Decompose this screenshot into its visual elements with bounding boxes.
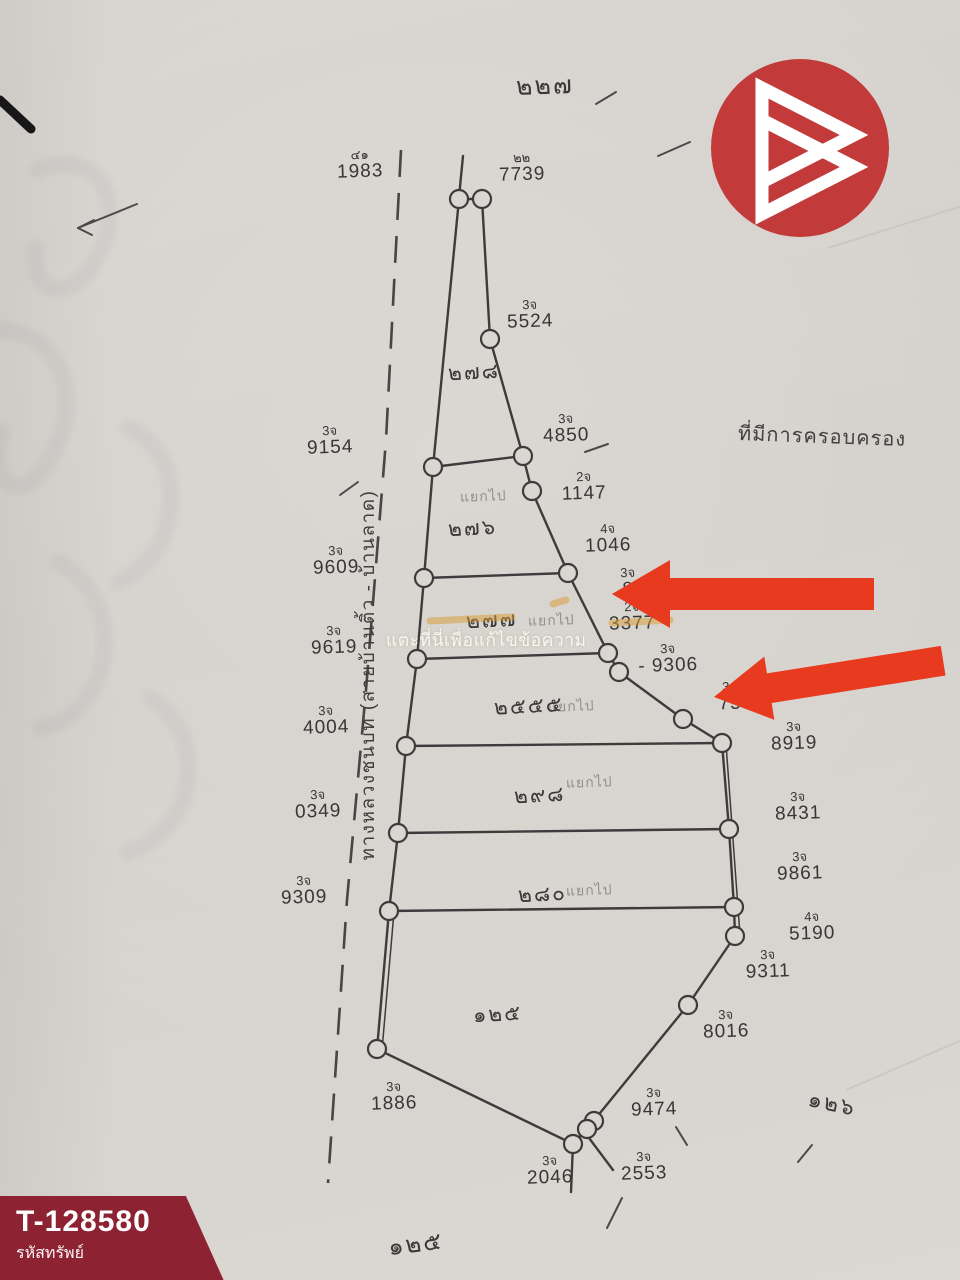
scanned-survey-photo: ทางหลวงชนบท (สายบ้านติ้ว - บ้านลาด) ที่ม… [0,0,960,1280]
red-pointer-arrow [709,629,948,729]
highlighter-streak [430,617,512,621]
property-code-label: รหัสทรัพย์ [16,1241,224,1266]
brand-logo [706,56,896,246]
brand-logo-circle [711,59,889,237]
property-code-banner: T-128580 รหัสทรัพย์ [0,1196,224,1280]
highlighter-streak [553,600,566,604]
editor-watermark: แตะที่นี่เพื่อแก้ไขข้อความ [386,626,587,654]
